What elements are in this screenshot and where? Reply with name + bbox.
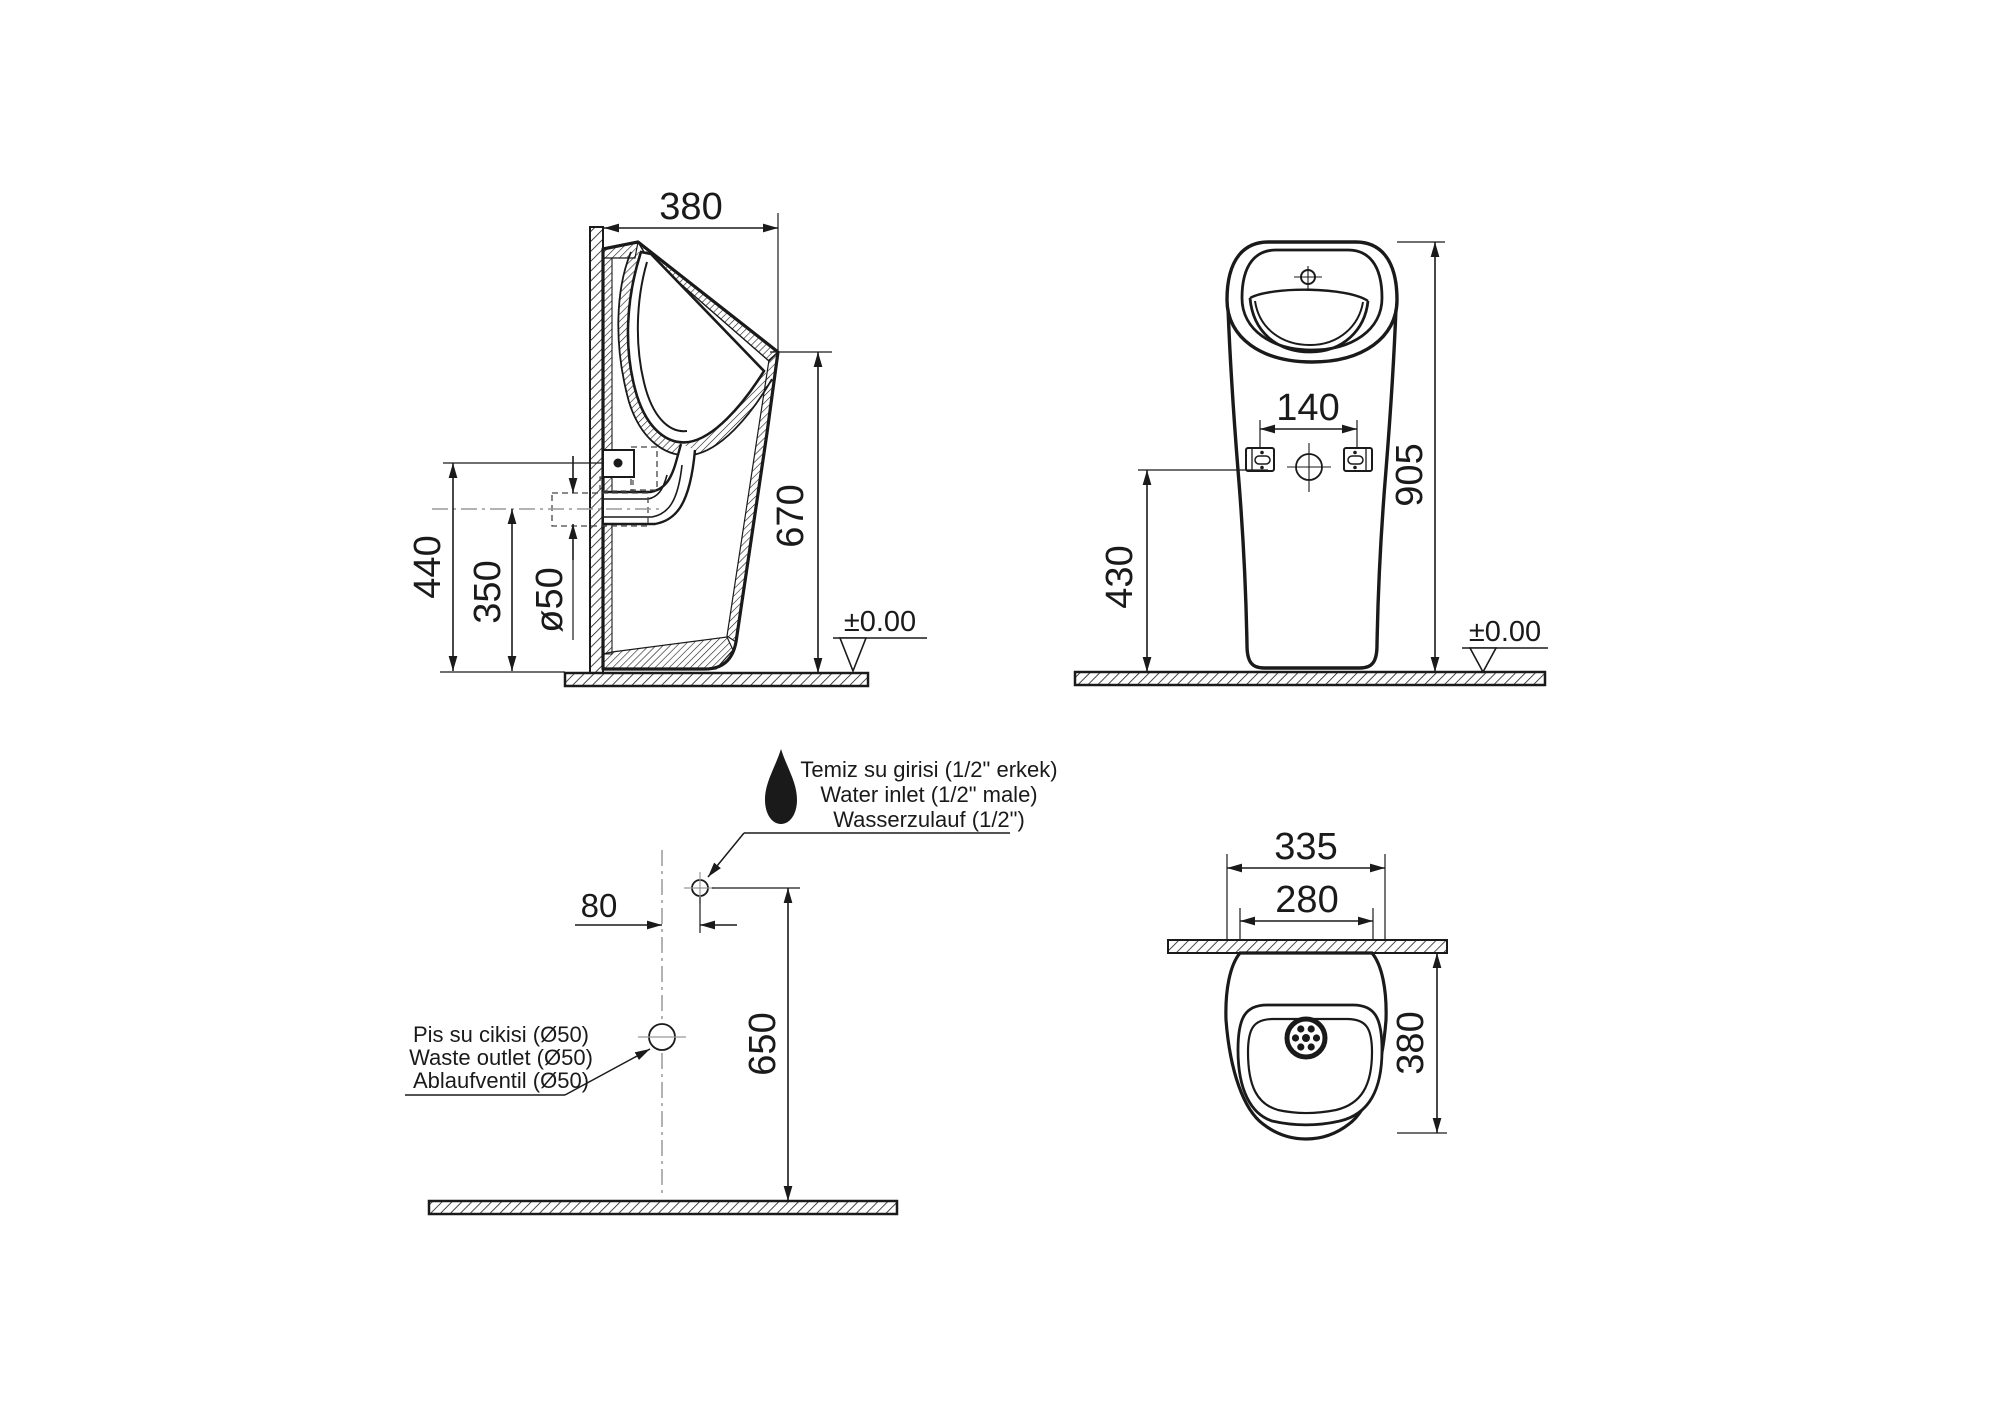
dim-label-side-width: 380 [659,186,722,228]
waste-outlet-label-en: Waste outlet (Ø50) [409,1045,593,1070]
dim-label-side-outlet-height: 350 [467,560,509,623]
waste-outlet-label-tr: Pis su cikisi (Ø50) [413,1022,589,1047]
side-section-view: 380 670 440 350 ø50 ±0.00 [407,186,927,686]
dim-label-top-inner-width: 280 [1275,879,1338,921]
dim-label-front-overall-height: 905 [1389,443,1431,506]
water-inlet-point [684,872,714,904]
dim-side-outlet-diameter: ø50 [529,456,573,640]
dim-top-depth: 380 [1390,953,1447,1133]
dim-label-inlet-height: 650 [742,1012,784,1075]
datum-label-front: ±0.00 [1469,616,1541,648]
fixing-bracket-left [1246,448,1274,471]
installation-view: Temiz su girisi (1/2" erkek) Water inlet… [405,749,1058,1214]
datum-label-side: ±0.00 [844,606,916,638]
water-inlet-leader [708,833,744,877]
drain-icon [1287,1019,1325,1057]
fixing-bracket-right [1344,448,1372,471]
datum-triangle [1470,648,1496,672]
water-drop-icon [765,749,797,824]
wall-top [1168,940,1447,953]
datum-triangle [840,638,866,671]
floor-section [565,673,868,686]
urinal-top-profile [1226,953,1386,1139]
water-inlet-label-en: Water inlet (1/2" male) [820,782,1037,807]
water-inlet-label-de: Wasserzulauf (1/2") [833,807,1025,832]
dim-label-side-outlet-diameter: ø50 [529,567,571,632]
urinal-technical-drawing: 380 670 440 350 ø50 ±0.00 [0,0,2000,1412]
datum-front: ±0.00 [1462,616,1548,672]
dim-inlet-offset: 80 [575,887,737,933]
dim-inlet-height: 650 [712,888,800,1201]
top-view: 335 280 [1168,826,1447,1139]
waste-outlet-label: Pis su cikisi (Ø50) Waste outlet (Ø50) A… [405,1022,650,1095]
dim-label-top-overall-width: 335 [1274,826,1337,868]
fixing-bolt-side [443,450,634,477]
wall-section [590,227,603,673]
dim-side-outlet-height: 350 [467,509,512,671]
dim-side-front-height: 670 [770,352,832,673]
dim-label-front-fixing-height: 430 [1099,545,1141,608]
dim-top-inner-width: 280 [1240,879,1373,940]
dim-label-front-hole-spacing: 140 [1276,387,1339,429]
drawing-sheet: 380 670 440 350 ø50 ±0.00 [0,0,2000,1412]
datum-side: ±0.00 [833,606,927,671]
front-view: 140 905 430 ±0.00 [1075,242,1548,685]
water-inlet-label: Temiz su girisi (1/2" erkek) Water inlet… [708,757,1058,877]
dim-label-inlet-offset: 80 [581,887,618,924]
floor-front [1075,672,1545,685]
water-inlet-label-tr: Temiz su girisi (1/2" erkek) [800,757,1057,782]
waste-outlet-point [638,1024,686,1050]
dim-label-side-front-height: 670 [770,484,812,547]
dim-label-top-depth: 380 [1390,1011,1432,1074]
waste-outlet-label-de: Ablaufventil (Ø50) [413,1068,589,1093]
opening-inner-rim [1242,250,1382,350]
floor-installation [429,1201,897,1214]
dim-label-side-fixing-height: 440 [407,535,449,598]
